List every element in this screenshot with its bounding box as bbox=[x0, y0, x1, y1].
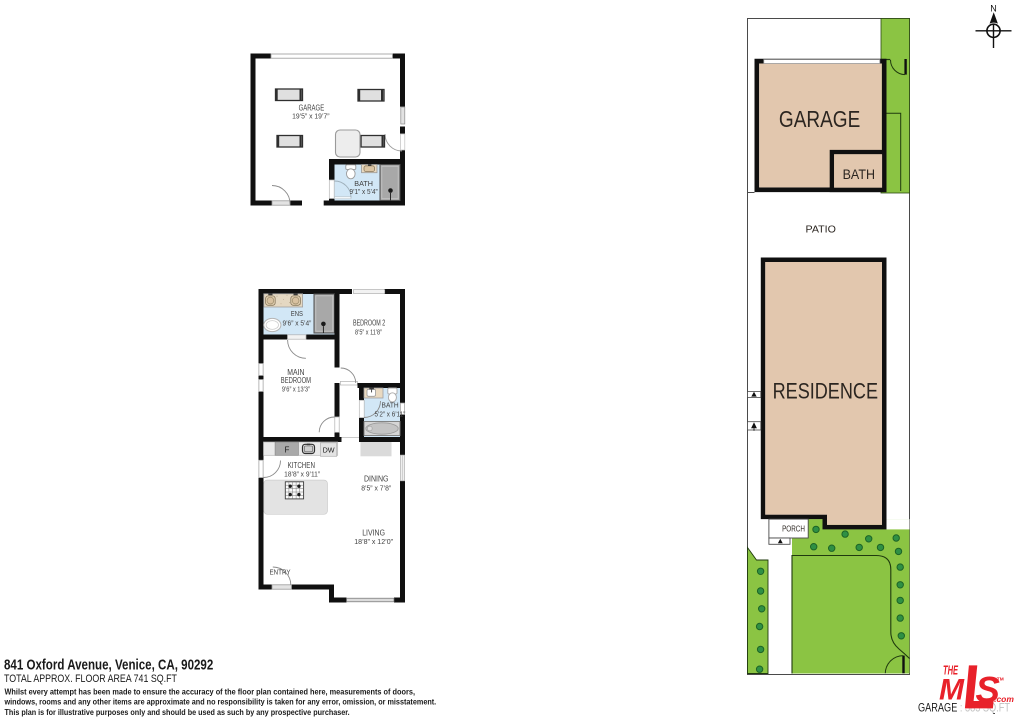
svg-text:TOTAL APPROX. FLOOR AREA 741 S: TOTAL APPROX. FLOOR AREA 741 SQ.FT bbox=[4, 673, 177, 685]
svg-text:18’8” x 12’0”: 18’8” x 12’0” bbox=[354, 537, 393, 546]
svg-text:N: N bbox=[990, 4, 997, 14]
svg-text:Whilst every attempt has been: Whilst every attempt has been made to en… bbox=[5, 687, 416, 697]
svg-text:This plan is for illustrative: This plan is for illustrative purposes o… bbox=[5, 707, 350, 717]
svg-text:9’6” x 5’4”: 9’6” x 5’4” bbox=[282, 321, 312, 328]
svg-text:19’5” x 19’7”: 19’5” x 19’7” bbox=[292, 111, 330, 120]
svg-text:RESIDENCE: RESIDENCE bbox=[773, 379, 878, 404]
svg-text:DW: DW bbox=[323, 446, 335, 455]
svg-text:8’5” x 11’8”: 8’5” x 11’8” bbox=[355, 327, 382, 336]
svg-text:.com: .com bbox=[994, 694, 1014, 704]
svg-text:ENTRY: ENTRY bbox=[270, 570, 291, 577]
svg-text:TM: TM bbox=[997, 676, 1004, 682]
svg-text:BATH: BATH bbox=[382, 403, 399, 410]
svg-text:windows, rooms and any other i: windows, rooms and any other items are a… bbox=[4, 697, 437, 707]
svg-text:9’1” x 5’4”: 9’1” x 5’4” bbox=[350, 189, 379, 196]
svg-text:DINING: DINING bbox=[364, 474, 389, 483]
svg-text:ENS: ENS bbox=[291, 309, 303, 318]
svg-text:PORCH: PORCH bbox=[782, 524, 805, 533]
svg-text:9’6” x 13’3”: 9’6” x 13’3” bbox=[282, 384, 310, 393]
svg-text:PATIO: PATIO bbox=[806, 224, 836, 236]
svg-text:BATH: BATH bbox=[354, 179, 373, 188]
svg-text:18’8” x 9’11”: 18’8” x 9’11” bbox=[284, 469, 320, 478]
svg-text:841 Oxford Avenue, Venice, CA,: 841 Oxford Avenue, Venice, CA, 90292 bbox=[4, 658, 213, 674]
svg-text:8’5” x 7’8”: 8’5” x 7’8” bbox=[361, 483, 391, 492]
svg-text:GARAGE: GARAGE bbox=[779, 106, 860, 132]
svg-text:M: M bbox=[939, 673, 965, 706]
svg-text:BATH: BATH bbox=[843, 166, 875, 182]
svg-text:5’2” x 6’11”: 5’2” x 6’11” bbox=[375, 411, 406, 418]
svg-text:F: F bbox=[285, 445, 290, 454]
